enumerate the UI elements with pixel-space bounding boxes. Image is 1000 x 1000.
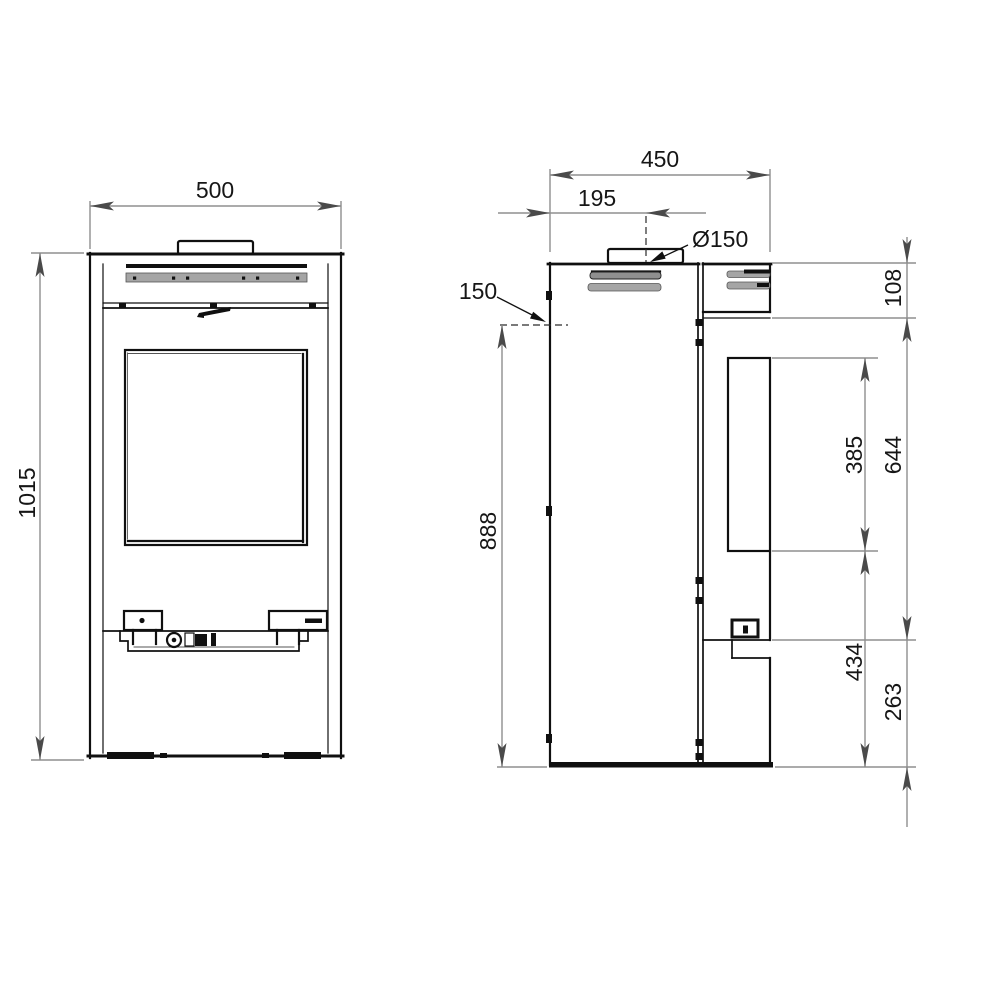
vent-slot-dark — [126, 264, 307, 268]
foot-right — [284, 752, 321, 759]
base-mark — [160, 753, 167, 758]
seam-tick — [119, 303, 126, 308]
technical-drawing-page: 500 1015 — [0, 0, 1000, 1000]
dim-label-644: 644 — [880, 436, 906, 475]
right-control-slot — [305, 619, 322, 624]
page-background — [0, 0, 1000, 1000]
side-bottom-edge — [549, 762, 773, 768]
latch-pin — [743, 626, 748, 634]
dim-label-888: 888 — [475, 512, 501, 550]
vent-grille — [126, 273, 307, 282]
stove-dimension-drawing: 500 1015 — [0, 0, 1000, 1000]
dim-label-500: 500 — [196, 177, 234, 203]
dim-label-450: 450 — [641, 146, 679, 172]
front-vent-dark-2 — [757, 283, 769, 287]
dim-label-263: 263 — [880, 683, 906, 721]
top-vent-bar-1 — [590, 272, 661, 279]
dim-label-1015: 1015 — [14, 467, 40, 518]
front-vent-dark-1 — [744, 270, 770, 274]
base-mark — [262, 753, 269, 758]
front-top-vents — [126, 264, 307, 282]
dim-label-108: 108 — [880, 269, 906, 307]
seam-tick — [210, 303, 217, 308]
seam-tick — [309, 303, 316, 308]
foot-left — [107, 752, 154, 759]
mechanism-block — [195, 634, 207, 646]
dim-label-385: 385 — [841, 436, 867, 474]
dim-label-195: 195 — [578, 185, 616, 211]
dim-label-flue-diameter: Ø150 — [692, 226, 748, 252]
dim-label-150: 150 — [459, 278, 497, 304]
knob-center — [172, 638, 177, 643]
top-vent-bar-2 — [588, 284, 661, 292]
dim-label-434: 434 — [841, 643, 867, 682]
left-control-pin — [139, 618, 144, 623]
mechanism-bar — [211, 633, 216, 646]
